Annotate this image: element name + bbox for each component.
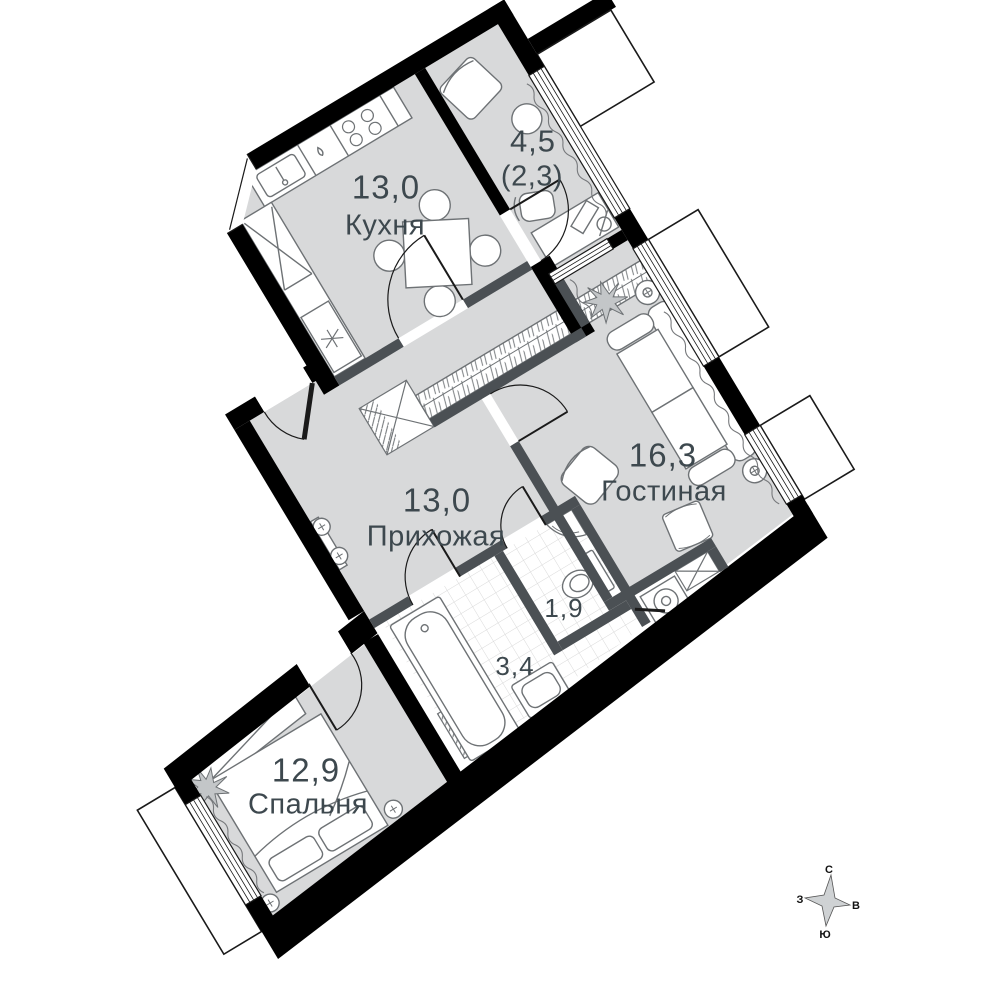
hall-area-label: 13,0 [403, 484, 471, 517]
wc-area-label: 1,9 [544, 595, 583, 621]
kitchen-area-label: 13,0 [352, 171, 420, 204]
bathroom-area-label: 3,4 [495, 653, 534, 679]
kitchen-name-label: Кухня [345, 212, 425, 241]
floorplan-canvas: С Ю З В 13,0 Кухня 4,5 (2,3) 16,3 Гостин… [0, 0, 1000, 1000]
dining-chair [423, 285, 456, 318]
compass-south: Ю [819, 929, 830, 941]
hall-name-label: Прихожая [367, 523, 505, 552]
dining-chair [373, 239, 406, 272]
living-name-label: Гостиная [601, 478, 727, 507]
loggia-reduced-area-label: (2,3) [501, 163, 563, 192]
floorplan-drawing: С Ю З В [0, 0, 1000, 1000]
compass-star-icon [805, 875, 850, 926]
loggia-area-label: 4,5 [510, 126, 556, 157]
bedroom-area-label: 12,9 [272, 754, 340, 787]
compass-east: В [852, 900, 860, 912]
living-area-label: 16,3 [629, 439, 697, 472]
compass-north: С [825, 864, 833, 876]
compass-rose: С Ю З В [797, 864, 860, 941]
compass-west: З [797, 894, 804, 906]
bedroom-name-label: Спальня [248, 791, 368, 820]
dining-chair [469, 234, 502, 267]
